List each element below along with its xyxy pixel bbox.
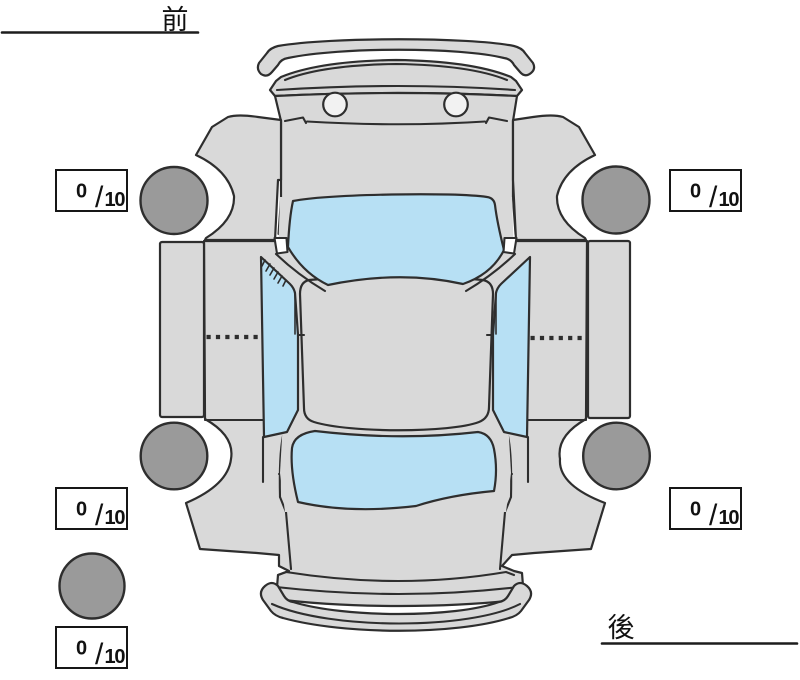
svg-text:/: / xyxy=(95,499,104,532)
svg-text:10: 10 xyxy=(719,189,740,211)
svg-text:0: 0 xyxy=(76,181,87,203)
svg-text:/: / xyxy=(709,499,718,532)
svg-text:0: 0 xyxy=(76,638,87,660)
svg-text:10: 10 xyxy=(105,189,126,211)
svg-text:/: / xyxy=(95,181,104,214)
svg-text:/: / xyxy=(95,638,104,671)
svg-text:0: 0 xyxy=(690,499,701,521)
svg-text:10: 10 xyxy=(105,507,126,529)
svg-text:0: 0 xyxy=(76,499,87,521)
svg-text:10: 10 xyxy=(719,507,740,529)
svg-text:10: 10 xyxy=(105,646,126,668)
svg-text:0: 0 xyxy=(690,181,701,203)
svg-text:/: / xyxy=(709,181,718,214)
svg-text:前: 前 xyxy=(162,5,189,35)
svg-text:後: 後 xyxy=(608,613,635,643)
